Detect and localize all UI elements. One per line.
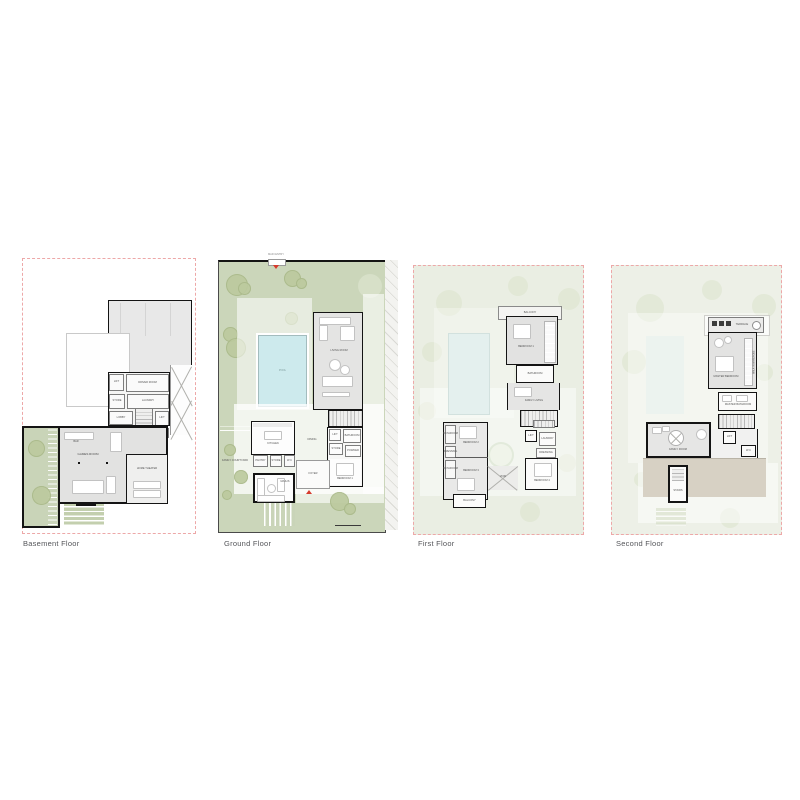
- room-family-living: FAMILY LIVING: [507, 383, 560, 410]
- room-lift: LIFT: [329, 429, 341, 441]
- floor-plan-sheet: LIFT DRIVER ROOM STORE LAUNDRY LOBBY LIF…: [0, 0, 800, 800]
- room-label-games: GAMES ROOM: [70, 451, 106, 459]
- shelving: [110, 432, 122, 452]
- steps-below: [656, 508, 686, 526]
- side-driveway: [385, 260, 398, 530]
- entry-marker-icon: [306, 490, 312, 494]
- room-bathroom: BATHROOM: [516, 365, 554, 383]
- tree-icon: [520, 502, 540, 522]
- pool-below: [448, 333, 490, 415]
- parking-divider: [120, 303, 121, 336]
- planting-slats: [220, 426, 250, 431]
- room-family: FAMILY ROOM: [646, 422, 711, 458]
- room-label-bar: BAR: [66, 439, 86, 445]
- tree-icon: [238, 282, 251, 295]
- room-label: LIFT: [727, 436, 732, 439]
- wardrobe: [544, 321, 556, 363]
- room-bath: BATHROOM: [343, 429, 361, 443]
- room-label: BEDROOM 4: [534, 480, 550, 483]
- room-dining: DINING: [298, 436, 326, 444]
- pool: POOL: [258, 335, 307, 407]
- room-label: POOL: [279, 370, 286, 373]
- tree-icon: [222, 490, 232, 500]
- room-label: BATHROOM: [443, 433, 458, 436]
- table-icon: [668, 430, 684, 446]
- room-pantry: PANTRY: [253, 455, 268, 467]
- room-bedroom1: BEDROOM 1: [506, 316, 558, 365]
- stair-shaft: STAIRS: [668, 465, 688, 503]
- room-label: BATHROOM: [345, 435, 360, 438]
- sunken-courtyard: [22, 426, 60, 528]
- room-theater: HOME THEATER: [126, 454, 167, 503]
- room-label: FAMILY ROOM: [669, 449, 687, 452]
- tree-icon: [32, 486, 51, 505]
- room-label: W.C: [746, 450, 751, 453]
- room-store2: STORE: [270, 455, 282, 467]
- room-label: GAMES ROOM: [77, 453, 98, 456]
- planting-slats: [48, 429, 57, 525]
- floor-plan-first: BALCONY BEDROOM 1 BATHROOM FAMILY LIVING…: [412, 258, 591, 553]
- room-label: DINING: [307, 439, 316, 442]
- sofa: [106, 476, 116, 494]
- parking-divider: [170, 303, 171, 336]
- room-label: VOID: [500, 476, 506, 479]
- car-ramp: [170, 365, 193, 435]
- room-wc: W.C: [741, 445, 756, 457]
- stairs: [328, 410, 363, 427]
- room-label: BEDROOM 1: [518, 346, 534, 349]
- bedroom-block: BATHROOM DRESSING BATHROOM BEDROOM 2 BED…: [443, 422, 488, 500]
- room-lift: LIFT: [723, 431, 736, 444]
- room-laundry: LAUNDRY: [539, 432, 556, 446]
- room-label: W.C: [287, 460, 292, 463]
- room-living: LIVING ROOM: [313, 312, 363, 410]
- tree-icon: [234, 470, 248, 484]
- family-courtyard: FAMILY COURTYARD: [220, 430, 250, 503]
- walkway: [363, 294, 384, 494]
- room-label: STAIRS: [673, 490, 682, 493]
- room-label: FAMILY LIVING: [525, 400, 543, 403]
- room-label: MAIN ENTRY: [268, 254, 284, 257]
- floor-plan-second: TERRACE WALK-IN WARDROBE MASTER BEDROOM …: [610, 258, 789, 553]
- room-label: DRESSING: [444, 451, 458, 454]
- parking-divider: [145, 303, 146, 336]
- room-label: STORE: [272, 460, 281, 463]
- room-label: BALCONY: [524, 312, 536, 315]
- room-store: STORE: [329, 443, 343, 455]
- room-label: PANTRY: [255, 460, 265, 463]
- tree-icon: [28, 440, 45, 457]
- floor-plan-ground: MAIN ENTRY POOL LIVING ROOM: [218, 254, 399, 554]
- room-label: LAUNDRY: [541, 438, 553, 441]
- room-label: BATHROOM: [528, 373, 543, 376]
- terrace: [643, 458, 766, 497]
- room-label: KITCHEN: [267, 443, 278, 446]
- wall-segment: [76, 502, 96, 506]
- entry-label: MAIN ENTRY: [254, 252, 298, 258]
- floor-plan-basement: LIFT DRIVER ROOM STORE LAUNDRY LOBBY LIF…: [14, 258, 200, 553]
- void-double-height: VOID: [488, 466, 518, 490]
- room-powder: POWDER: [345, 445, 361, 457]
- room-bedroom1: BEDROOM 1: [329, 459, 361, 485]
- pool-below: [646, 336, 684, 414]
- room-master-bedroom: WALK-IN WARDROBE MASTER BEDROOM: [708, 332, 757, 389]
- room-label: BEDROOM 1: [337, 478, 353, 481]
- room-label: MAJLIS: [280, 481, 289, 484]
- room-dressing: DRESSING: [536, 448, 556, 458]
- room-label: LIVING ROOM: [330, 350, 347, 353]
- room-label: STORE: [332, 448, 341, 451]
- entry-steps: [264, 503, 295, 526]
- floor-caption-basement: Basement Floor: [23, 539, 79, 548]
- garden-steps: [64, 504, 104, 526]
- room-label: LIFT: [332, 434, 337, 437]
- room-majlis: MAJLIS: [253, 473, 295, 503]
- service-band-wall: [108, 372, 170, 426]
- room-wc: W.C: [284, 455, 295, 467]
- tree-icon: [508, 276, 528, 296]
- floor-caption-second: Second Floor: [616, 539, 664, 548]
- room-lift: LIFT: [525, 430, 537, 442]
- column: [78, 462, 80, 464]
- room-master-bathroom: MASTER BATHROOM: [718, 392, 757, 411]
- room-foyer: FOYER: [296, 460, 330, 489]
- room-label: LIFT: [528, 435, 533, 438]
- stairs: [718, 414, 755, 429]
- room-label: BAR: [73, 441, 78, 444]
- room-label: BATHROOM: [443, 468, 458, 471]
- room-label: BEDROOM 2: [463, 442, 479, 445]
- room-bedroom4: BEDROOM 4: [525, 458, 558, 490]
- scale-bar: [335, 525, 361, 526]
- room-label: DRESSING: [539, 452, 553, 455]
- entry-marker-icon: [273, 265, 279, 269]
- room-roof-terrace: TERRACE: [708, 317, 764, 333]
- room-kitchen: KITCHEN: [251, 421, 295, 455]
- room-label: TERRACE: [736, 324, 748, 327]
- room-label: FAMILY COURTYARD: [222, 460, 248, 463]
- stairs: [533, 420, 555, 428]
- room-label: FOYER: [309, 473, 318, 476]
- floor-caption-first: First Floor: [418, 539, 455, 548]
- room-balcony: BALCONY: [453, 494, 486, 508]
- room-label: HOME THEATER: [137, 468, 157, 471]
- game-table: [72, 480, 104, 494]
- room-label: MASTER BEDROOM: [714, 376, 739, 379]
- room-label: BEDROOM 3: [463, 470, 479, 473]
- floor-caption-ground: Ground Floor: [224, 539, 271, 548]
- tree-icon: [224, 444, 236, 456]
- room-label: WALK-IN WARDROBE: [753, 350, 755, 374]
- tree-icon: [702, 280, 722, 300]
- room-label: POWDER: [347, 450, 359, 453]
- room-label: MASTER BATHROOM: [725, 404, 751, 407]
- column: [106, 462, 108, 464]
- courtyard-tree-icon: [490, 444, 512, 466]
- tree-icon: [344, 503, 356, 515]
- room-label: BALCONY: [463, 500, 475, 503]
- tree-icon: [296, 278, 307, 289]
